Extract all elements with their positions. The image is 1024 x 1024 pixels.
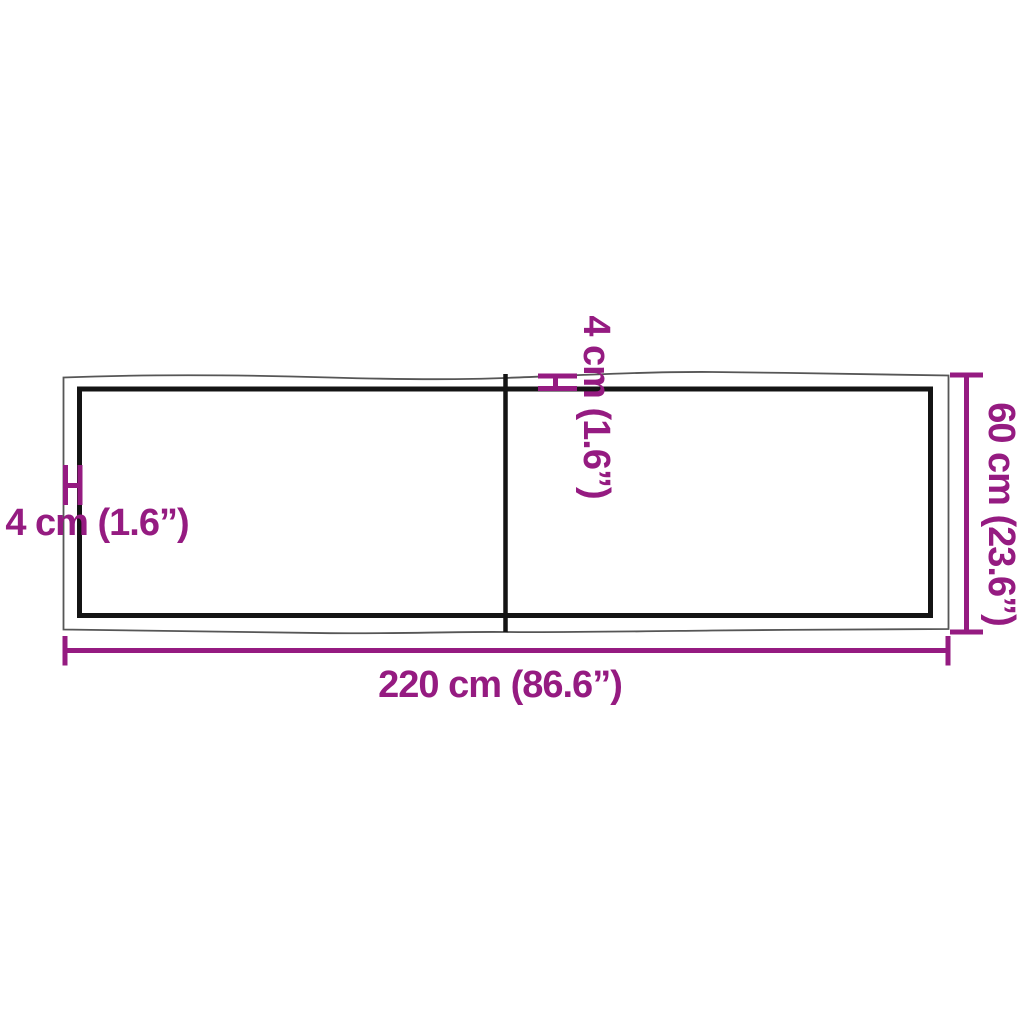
thickness-bracket-left <box>63 465 83 505</box>
width-dimension-label: 220 cm (86.6”) <box>378 664 622 706</box>
tabletop-dimension-drawing: 4 cm (1.6”) 4 cm (1.6”) 60 cm (23.6”) 22… <box>0 0 1024 1024</box>
depth-dimension-label: 60 cm (23.6”) <box>980 402 1022 626</box>
product-dimension-diagram: 4 cm (1.6”) 4 cm (1.6”) 60 cm (23.6”) 22… <box>0 0 1024 1024</box>
depth-dimension-line <box>950 375 983 632</box>
thickness-center-label: 4 cm (1.6”) <box>575 315 617 498</box>
thickness-bracket-center <box>538 374 577 392</box>
width-dimension-line <box>65 636 948 666</box>
thickness-left-label: 4 cm (1.6”) <box>5 502 188 544</box>
